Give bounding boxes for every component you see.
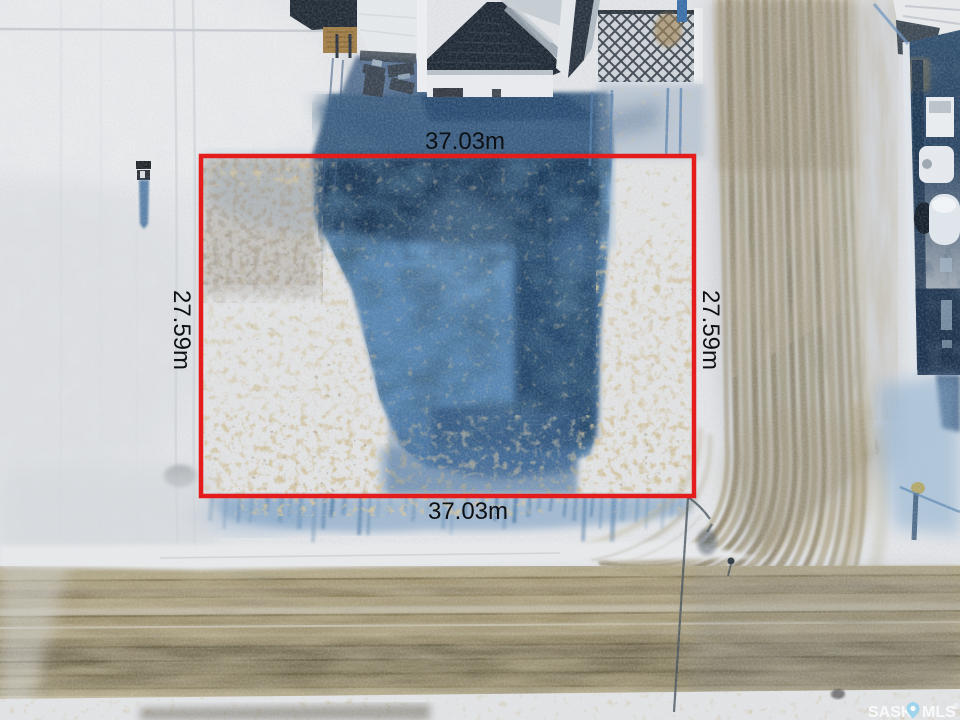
svg-text:27.59m: 27.59m [697,290,724,370]
svg-text:MLS: MLS [922,704,956,720]
svg-text:37.03m: 37.03m [425,128,505,155]
svg-text:27.59m: 27.59m [168,290,195,370]
svg-text:®: ® [953,702,959,711]
svg-text:SASK: SASK [868,704,913,720]
svg-text:37.03m: 37.03m [428,498,508,525]
